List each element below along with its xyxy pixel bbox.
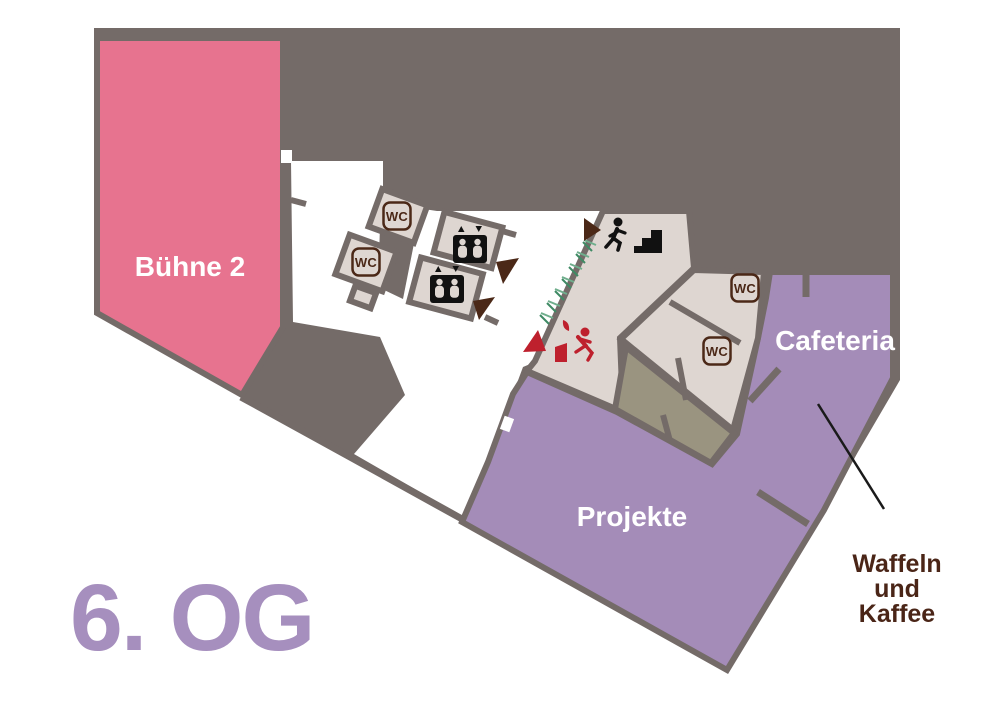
wall-stub-corridor (291, 200, 306, 204)
wc-sign-label: WC (706, 344, 729, 359)
room-label-buehne-2: Bühne 2 (135, 251, 245, 282)
wc-sign-icon: WC (704, 338, 731, 365)
room-wc-left-stub (350, 286, 376, 309)
annotation-line-3: Kaffee (859, 600, 936, 628)
annotation-line-2: und (874, 575, 920, 603)
room-label-cafeteria: Cafeteria (775, 325, 895, 356)
floor-plan-svg: WC WC WC WC Waffeln und Kaffee Bühne 2 P… (0, 0, 993, 702)
wc-sign-label: WC (734, 281, 757, 296)
floor-plan-page: WC WC WC WC Waffeln und Kaffee Bühne 2 P… (0, 0, 993, 702)
wc-sign-label: WC (386, 209, 409, 224)
wc-sign-icon: WC (732, 275, 759, 302)
wc-sign-label: WC (355, 255, 378, 270)
wall-stub-elevator-upper (502, 231, 516, 235)
wc-sign-icon: WC (353, 249, 380, 276)
door-gap-stage (281, 150, 292, 163)
annotation-line-1: Waffeln (852, 550, 941, 578)
room-label-projekte: Projekte (577, 501, 688, 532)
wc-sign-icon: WC (384, 203, 411, 230)
floor-label: 6. OG (70, 565, 313, 671)
